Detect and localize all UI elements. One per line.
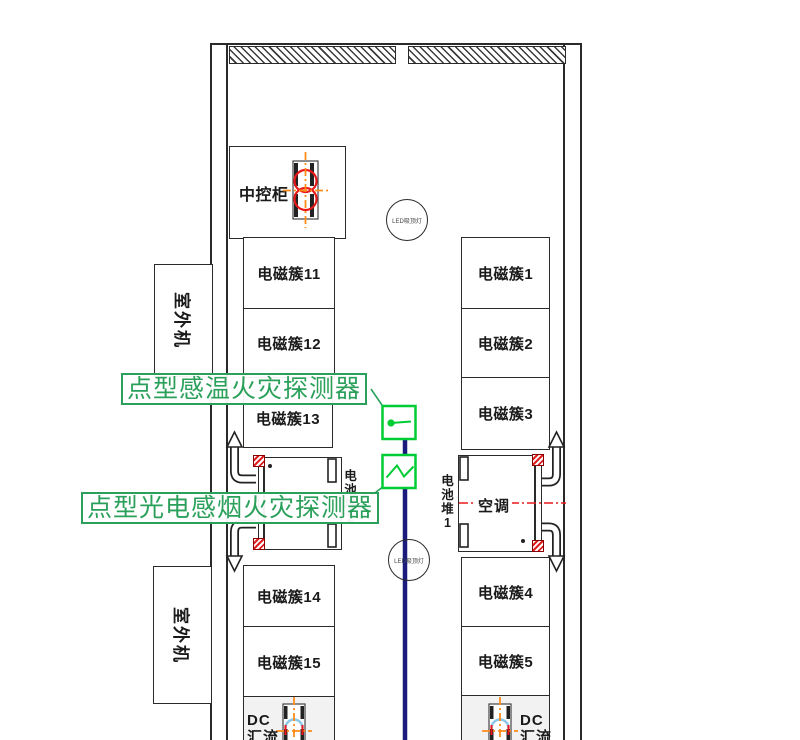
- wall-right-inner: [563, 44, 565, 740]
- alarm-corner-marker: [253, 538, 265, 550]
- cabinet-label: 电磁簇5: [478, 651, 533, 672]
- outdoor-unit-label: 室外机: [171, 292, 196, 349]
- smoke-detector-callout: 点型光电感烟火灾探测器: [81, 492, 379, 524]
- cabinet-label: 电磁簇11: [257, 263, 320, 284]
- cabinet-box-4: 电磁簇4: [461, 557, 550, 628]
- cabinet-label: 电磁簇3: [478, 403, 533, 424]
- cabinet-label: 电磁簇4: [478, 582, 533, 603]
- heat-detector-leader-line: [371, 389, 384, 408]
- outdoor-unit-box-bottom: 室外机: [153, 566, 212, 704]
- reference-dot: [521, 539, 525, 543]
- heat-detector-icon: [383, 406, 416, 439]
- cabinet-box-5: 电磁簇5: [461, 626, 550, 697]
- dc-label-line1: DC: [247, 712, 279, 729]
- heat-detector-callout: 点型感温火灾探测器: [121, 373, 367, 405]
- alarm-corner-marker: [253, 455, 265, 467]
- cabinet-label: 电磁簇15: [257, 652, 321, 673]
- outdoor-unit-label: 室外机: [170, 607, 195, 664]
- dc-label-line1: DC: [520, 712, 552, 729]
- smoke-detector-icon: [383, 455, 416, 488]
- cabinet-label: 电磁簇1: [478, 263, 533, 284]
- airflow-arrow-left-down: [227, 524, 256, 571]
- cabinet-label: 电磁簇13: [256, 408, 320, 429]
- alarm-corner-marker: [532, 454, 544, 466]
- cabinet-box-3: 电磁簇3: [461, 377, 550, 450]
- air-conditioner-label: 空调: [476, 495, 512, 516]
- cabinet-label: 电磁簇14: [257, 586, 321, 607]
- wall-hatch-right-segment: [408, 46, 566, 64]
- cabinet-box-15: 电磁簇15: [243, 626, 335, 698]
- control-cabinet-label: 中控柜: [239, 181, 289, 205]
- diagram-linework: [0, 0, 800, 740]
- led-ceiling-light-icon: LED吸顶灯: [386, 199, 428, 241]
- cabinet-box-12: 电磁簇12: [243, 308, 335, 379]
- led-ceiling-light-icon: LED吸顶灯: [388, 539, 430, 581]
- battery-stack-right-label: 电池堆1: [440, 474, 455, 530]
- cabinet-box-11: 电磁簇11: [243, 237, 335, 310]
- wall-right-outer: [580, 43, 582, 740]
- dc-combiner-right-label: DC 汇流: [520, 712, 552, 740]
- alarm-corner-marker: [532, 540, 544, 552]
- control-cabinet-box: 中控柜: [229, 146, 346, 239]
- wall-hatch-left-segment: [229, 46, 396, 64]
- outdoor-unit-box-top: 室外机: [154, 264, 213, 377]
- cabinet-label: 电磁簇2: [478, 333, 533, 354]
- dc-label-line2: 汇流: [247, 729, 279, 740]
- led-ceiling-light-label: LED吸顶灯: [394, 556, 424, 565]
- cabinet-box-14: 电磁簇14: [243, 565, 335, 628]
- floor-plan-diagram: 室外机 室外机 中控柜 电磁簇11 电磁簇12 电磁簇13 电磁簇14 电磁簇1…: [0, 0, 800, 740]
- wall-top: [210, 43, 582, 45]
- cabinet-box-2: 电磁簇2: [461, 308, 550, 379]
- reference-dot: [268, 464, 272, 468]
- cabinet-box-1: 电磁簇1: [461, 237, 550, 310]
- dc-combiner-left-label: DC 汇流: [247, 712, 279, 740]
- battery-stack-right-inner-edge: [534, 456, 536, 549]
- cabinet-label: 电磁簇12: [257, 333, 321, 354]
- dc-label-line2: 汇流: [520, 729, 552, 740]
- led-ceiling-light-label: LED吸顶灯: [392, 216, 422, 225]
